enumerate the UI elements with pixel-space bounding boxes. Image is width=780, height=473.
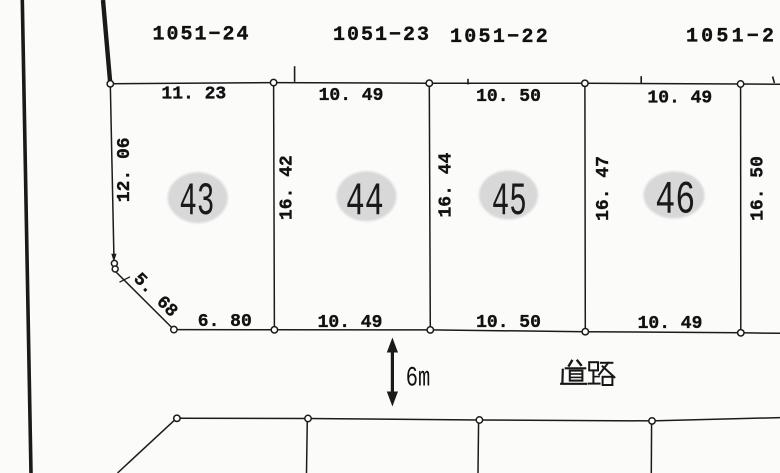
svg-text:10. 50: 10. 50	[476, 87, 541, 107]
svg-text:16. 47: 16. 47	[594, 156, 614, 221]
svg-text:12. 06: 12. 06	[115, 137, 135, 202]
svg-text:1051−2: 1051−2	[686, 26, 777, 49]
svg-text:10. 50: 10. 50	[476, 313, 541, 333]
svg-text:10. 49: 10. 49	[318, 313, 383, 333]
svg-text:16. 44: 16. 44	[437, 152, 457, 217]
svg-text:43: 43	[179, 176, 214, 228]
svg-text:16. 50: 16. 50	[749, 156, 769, 221]
svg-text:1051−22: 1051−22	[450, 26, 550, 49]
svg-text:16. 42: 16. 42	[278, 155, 298, 220]
svg-text:1051−24: 1051−24	[152, 23, 250, 46]
svg-text:10. 49: 10. 49	[319, 86, 384, 106]
svg-text:6m: 6m	[406, 364, 431, 395]
svg-text:46: 46	[655, 174, 695, 226]
svg-text:10. 49: 10. 49	[638, 314, 703, 334]
svg-text:45: 45	[492, 176, 527, 228]
svg-text:10. 49: 10. 49	[647, 88, 712, 108]
svg-text:1051−23: 1051−23	[333, 24, 431, 47]
svg-text:44: 44	[346, 176, 384, 228]
svg-text:11. 23: 11. 23	[161, 84, 226, 104]
svg-text:6. 80: 6. 80	[198, 312, 252, 332]
